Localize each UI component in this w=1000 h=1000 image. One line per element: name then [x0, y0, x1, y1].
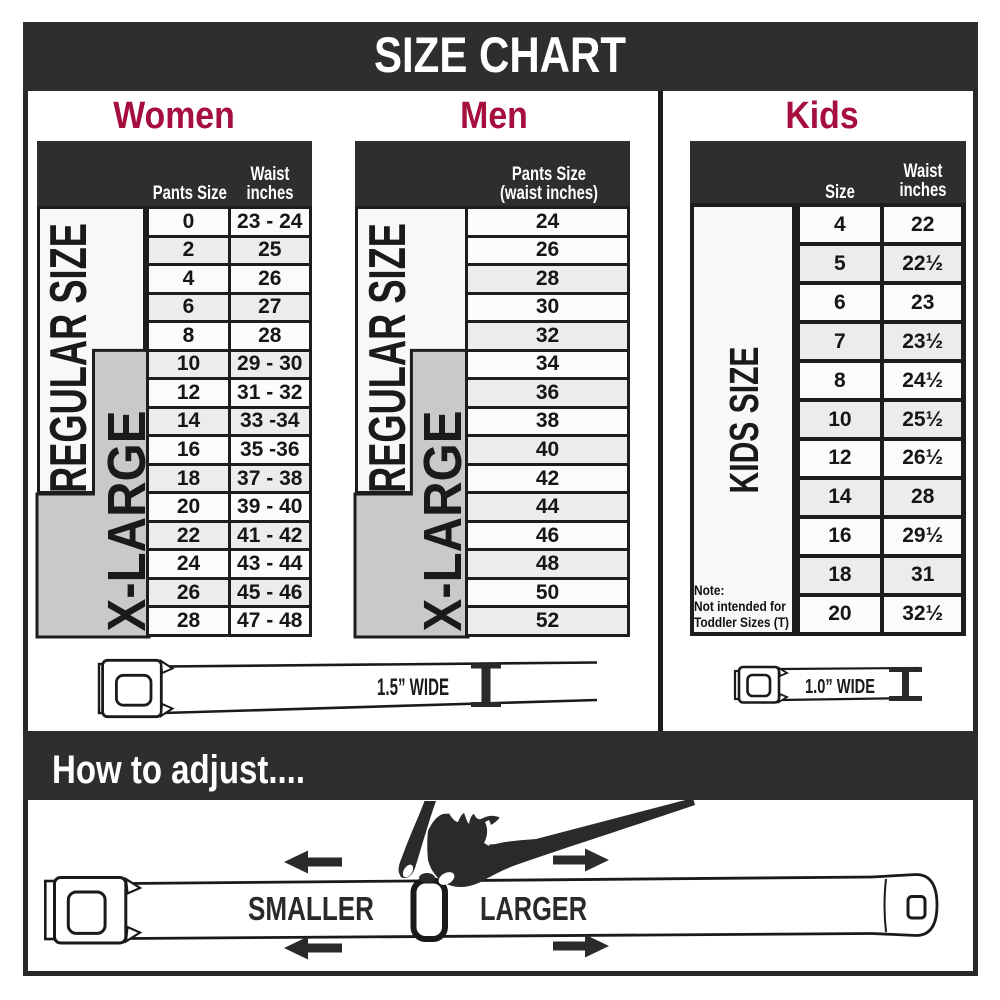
svg-text:SMALLER: SMALLER — [248, 890, 374, 927]
svg-text:1.0” WIDE: 1.0” WIDE — [805, 676, 875, 698]
svg-text:LARGER: LARGER — [480, 890, 587, 927]
svg-text:1.5” WIDE: 1.5” WIDE — [377, 674, 449, 701]
